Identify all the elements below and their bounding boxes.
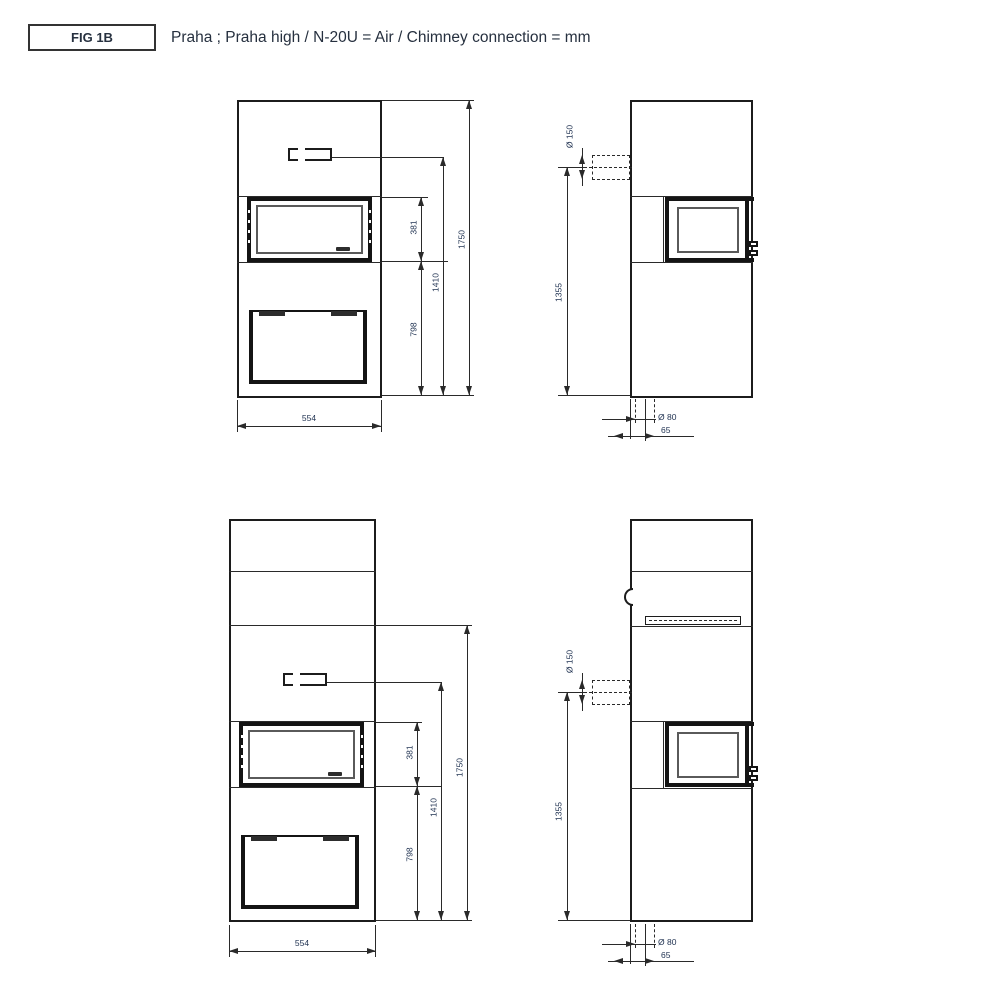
section-divider-line [630,788,753,789]
shelf-centerline [649,620,737,621]
arrow-left [614,958,623,964]
arrow-right [645,958,654,964]
door-handle [749,775,758,781]
door-bottom-edge [749,783,754,787]
door-top-edge [749,722,754,726]
door-edge-line [663,721,664,788]
side-door-glass [677,732,739,778]
figure-canvas: FIG 1B Praha ; Praha high / N-20U = Air … [0,0,1000,1000]
side-view-praha-high: Ø 150 1355 Ø 80 65 [0,0,1000,1000]
arrow-up [579,680,585,689]
pipe-centerline [584,692,632,693]
arrow-up [564,692,570,701]
top-module-divider [630,571,753,572]
body-notch [624,588,633,606]
door-handle [749,766,758,772]
ext-line [558,692,584,693]
arrow-down [564,911,570,920]
dim-line-flue-height [567,692,568,920]
arrow-right [626,941,635,947]
dim-label-bottom-flue: Ø 80 [658,937,676,948]
top-module-divider [630,626,753,627]
ext-line [558,920,630,921]
dim-label-flue-offset: 65 [661,950,670,961]
dim-label-flue-height: 1355 [554,797,565,827]
arrow-down [579,695,585,704]
dim-label-flue-diameter: Ø 150 [565,644,576,680]
